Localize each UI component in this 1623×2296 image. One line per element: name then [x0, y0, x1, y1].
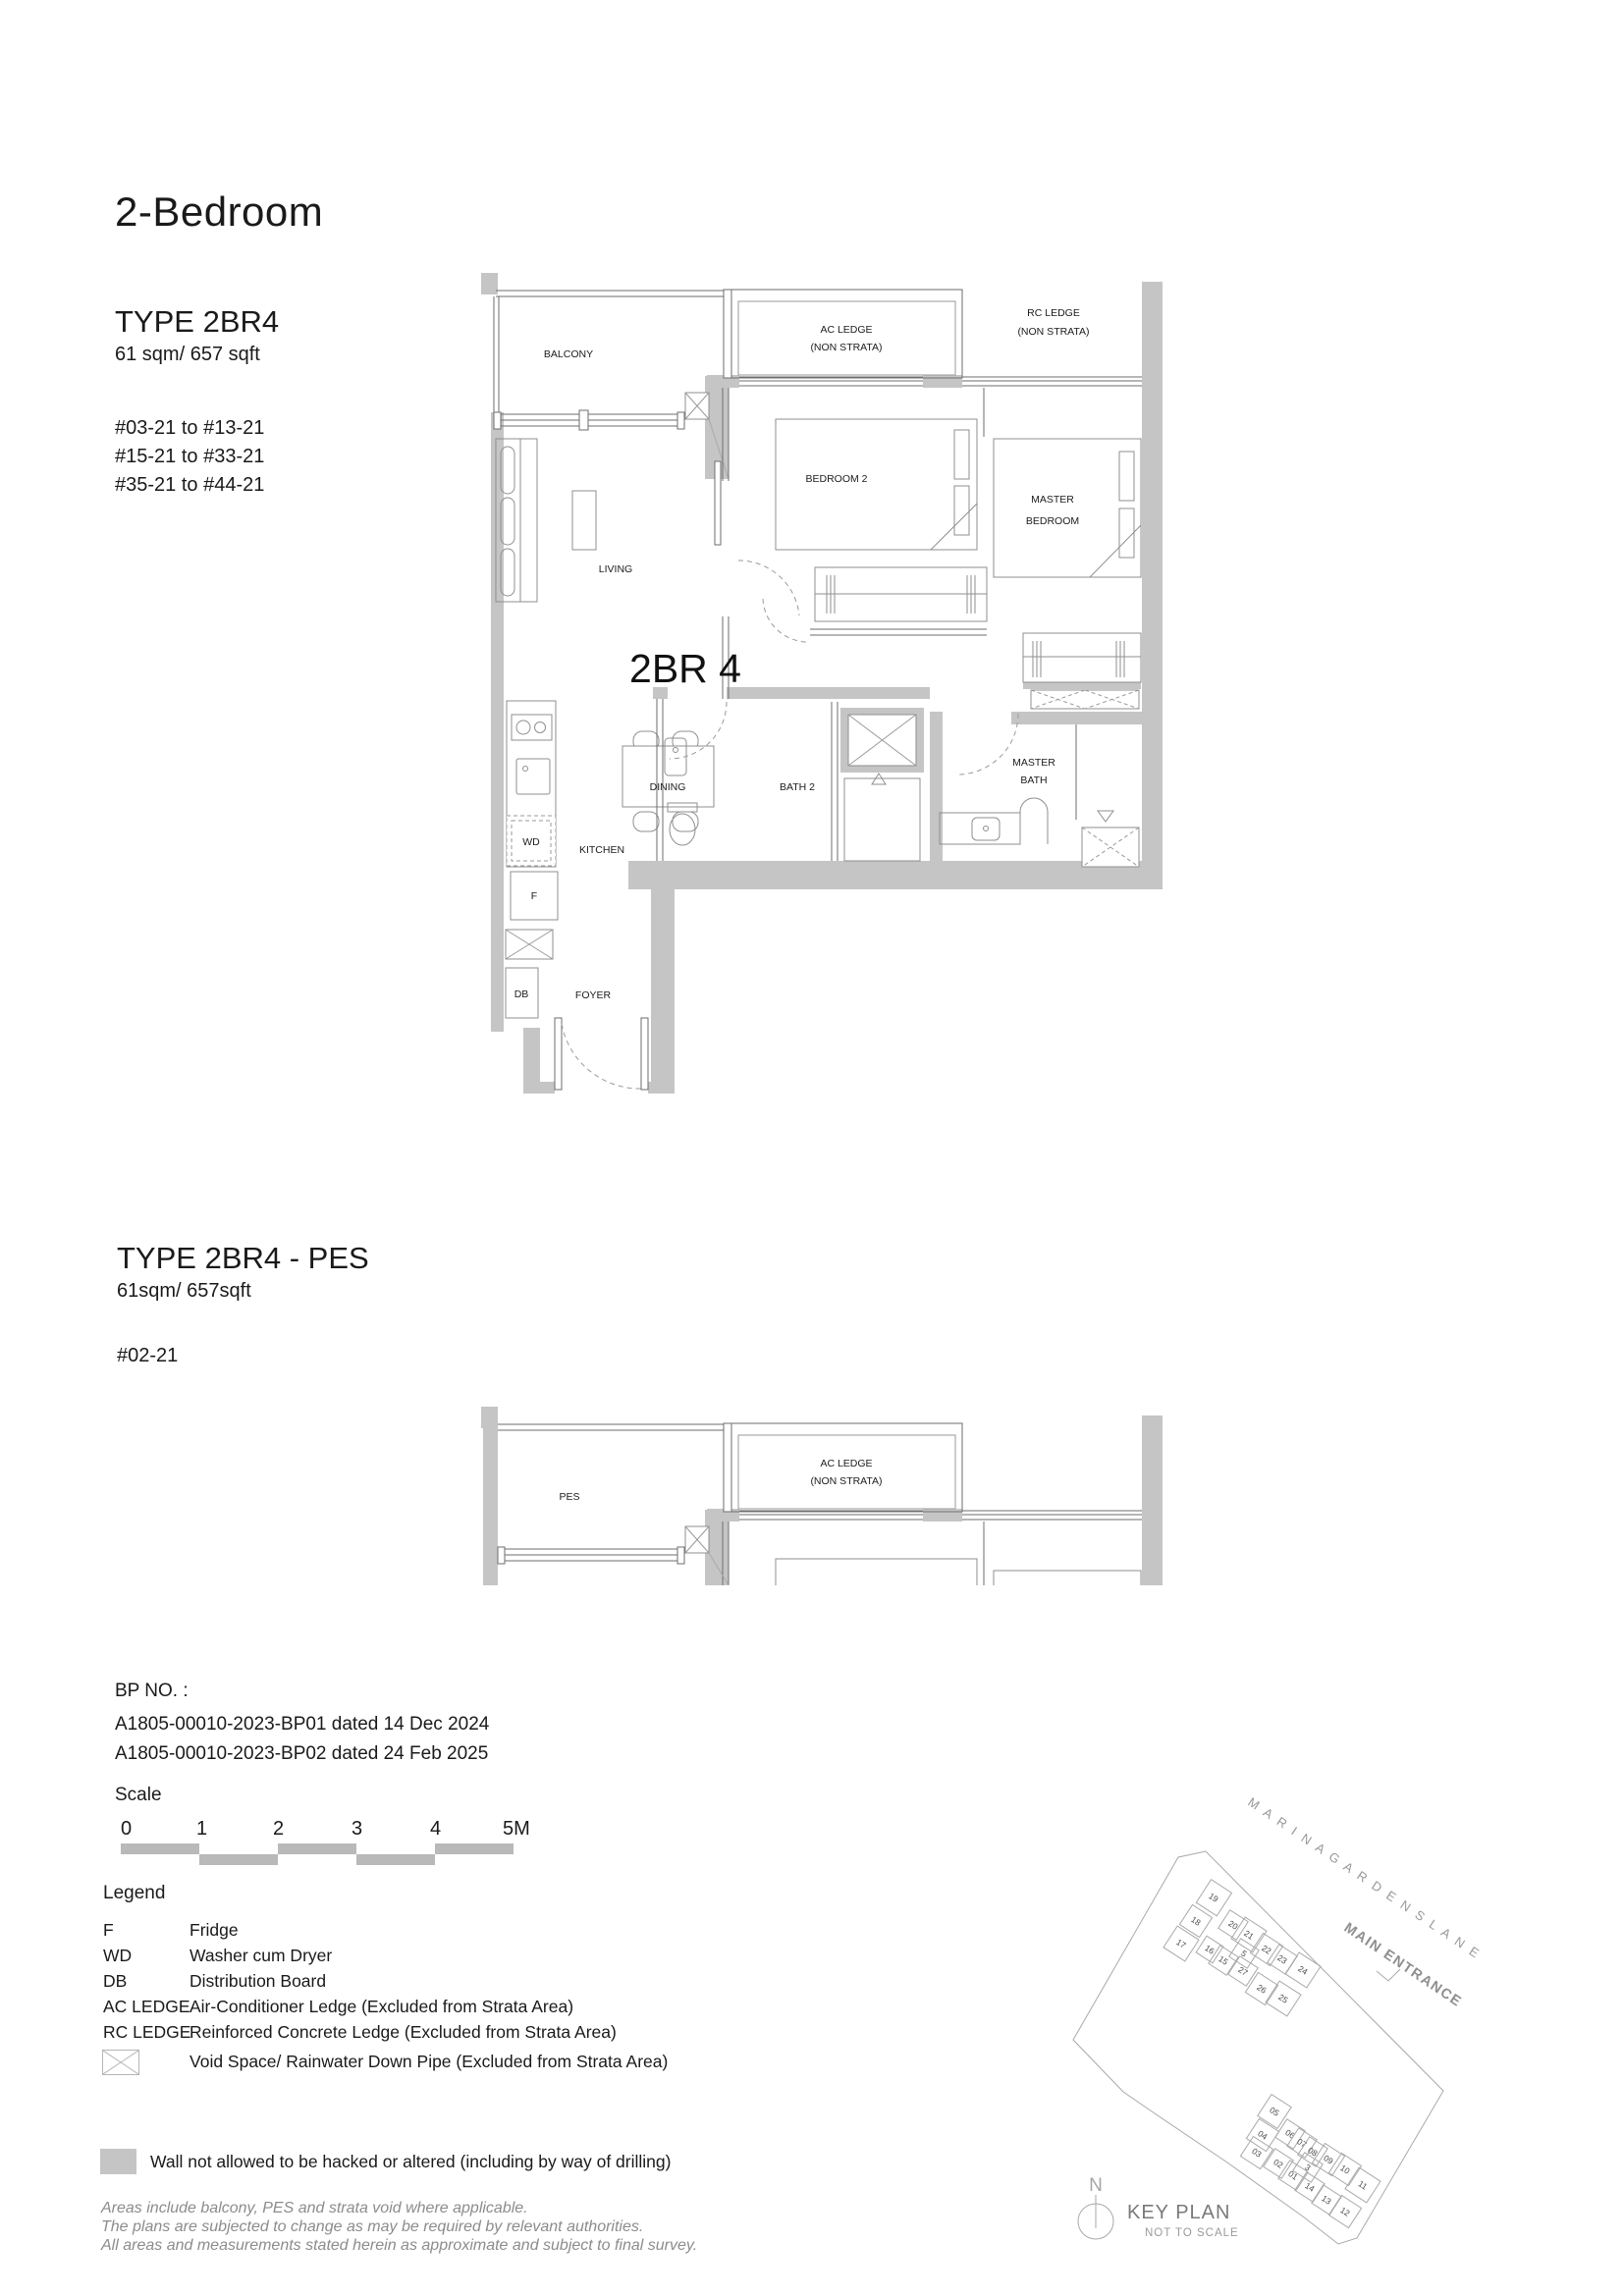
- unit-a-type-title: TYPE 2BR4: [115, 304, 279, 340]
- unit-24: 24: [1296, 1963, 1310, 1977]
- label-living: LIVING: [599, 563, 632, 575]
- unit-25: 25: [1276, 1992, 1290, 2005]
- label-master-bedroom-1: MASTER: [1031, 494, 1074, 506]
- unit-19: 19: [1207, 1891, 1220, 1904]
- bedroom2-door-arc: [738, 561, 799, 615]
- unit-20: 20: [1226, 1918, 1240, 1932]
- master-bed: [994, 439, 1141, 577]
- label-balcony: BALCONY: [544, 348, 593, 360]
- disclaimer-line-3: All areas and measurements stated herein…: [101, 2236, 697, 2255]
- label-master-bath-1: MASTER: [1012, 757, 1055, 769]
- void-box-master-bath: [1082, 828, 1139, 867]
- floorplan-2br4-pes: PES AC LEDGE (NON STRATA): [481, 1404, 1168, 1585]
- void-box-kitchen: [506, 930, 553, 959]
- scale-tick-0: 0: [121, 1818, 132, 1841]
- label-master-bath-2: BATH: [1020, 774, 1047, 786]
- tower1-units: 19 18 17 20 21 16 15 5 22 23 24 27 26 25: [1163, 1880, 1321, 2016]
- key-plan: M A R I N A G A R D E N S L A N E MAIN E…: [1060, 1767, 1623, 2296]
- scale-tick-4: 4: [430, 1818, 441, 1841]
- legend-key-db: DB: [103, 1971, 127, 1992]
- unit-18: 18: [1189, 1914, 1203, 1928]
- cropped-interior-hints: [709, 1522, 1141, 1585]
- label-rc-ledge-sub: (NON STRATA): [1017, 326, 1089, 338]
- unit-27: 27: [1236, 1964, 1250, 1978]
- scale-tick-5: 5M: [503, 1818, 530, 1841]
- unit-12: 12: [1338, 2205, 1352, 2218]
- label-ac-ledge: AC LEDGE: [820, 324, 872, 336]
- keyplan-subtitle: NOT TO SCALE: [1145, 2227, 1239, 2239]
- legend-key-rc: RC LEDGE: [103, 2022, 190, 2043]
- label-ac-ledge-sub: (NON STRATA): [810, 342, 882, 353]
- legend-key-f: F: [103, 1920, 114, 1941]
- site-boundary: [1073, 1851, 1443, 2244]
- wall-note: Wall not allowed to be hacked or altered…: [150, 2152, 671, 2172]
- legend-key-wd: WD: [103, 1946, 132, 1966]
- scale-tick-2: 2: [273, 1818, 284, 1841]
- bp-line-2: A1805-00010-2023-BP02 dated 24 Feb 2025: [115, 1739, 489, 1769]
- unit-a-levels: #03-21 to #13-21 #15-21 to #33-21 #35-21…: [115, 414, 264, 500]
- legend-key-ac: AC LEDGE: [103, 1997, 190, 2017]
- disclaimer-line-1: Areas include balcony, PES and strata vo…: [101, 2199, 697, 2217]
- bedroom2-walls: [715, 388, 987, 699]
- unit-b-area: 61sqm/ 657sqft: [117, 1280, 251, 1303]
- legend-desc-wd: Washer cum Dryer: [189, 1946, 332, 1966]
- label-ac-ledge: AC LEDGE: [820, 1458, 872, 1469]
- unit-b-level: #02-21: [117, 1345, 178, 1367]
- unit-a-area: 61 sqm/ 657 sqft: [115, 344, 260, 366]
- floorplan-brochure-page: 2-Bedroom TYPE 2BR4 61 sqm/ 657 sqft #03…: [0, 0, 1623, 2296]
- master-bath-door-arc: [957, 714, 1018, 774]
- label-wd: WD: [522, 836, 540, 848]
- legend-desc-void: Void Space/ Rainwater Down Pipe (Exclude…: [189, 2052, 668, 2072]
- label-master-bedroom-2: BEDROOM: [1026, 515, 1079, 527]
- scale-tick-3: 3: [352, 1818, 362, 1841]
- void-box-bath-shaft: [840, 708, 924, 861]
- master-wardrobe: [1023, 633, 1141, 682]
- unit-02: 02: [1271, 2157, 1285, 2170]
- unit-26: 26: [1255, 1982, 1269, 1996]
- walls: [481, 273, 1163, 1094]
- label-kitchen: KITCHEN: [579, 844, 624, 856]
- void-box-pes: [685, 1526, 709, 1553]
- unit-b-type-title: TYPE 2BR4 - PES: [117, 1241, 369, 1276]
- void-band-wardrobe: [1031, 690, 1139, 709]
- label-plan-name: 2BR 4: [629, 646, 741, 691]
- bp-lines: A1805-00010-2023-BP01 dated 14 Dec 2024 …: [115, 1710, 489, 1769]
- unit-17: 17: [1174, 1937, 1188, 1950]
- unit-a-level-3: #35-21 to #44-21: [115, 471, 264, 500]
- unit-3: 3: [1303, 2163, 1313, 2173]
- bp-heading: BP NO. :: [115, 1681, 189, 1702]
- entry-door: [555, 1018, 648, 1090]
- wall-swatch-icon: [100, 2149, 136, 2174]
- unit-13: 13: [1320, 2193, 1333, 2207]
- north-compass-icon: N: [1078, 2175, 1113, 2239]
- label-rc-ledge: RC LEDGE: [1027, 307, 1080, 319]
- floorplan-2br4: BALCONY AC LEDGE (NON STRATA) RC LEDGE (…: [481, 270, 1168, 1102]
- unit-10: 10: [1338, 2163, 1352, 2176]
- unit-a-level-1: #03-21 to #13-21: [115, 414, 264, 443]
- unit-11: 11: [1357, 2178, 1370, 2191]
- legend-desc-ac: Air-Conditioner Ledge (Excluded from Str…: [189, 1997, 573, 2017]
- unit-a-level-2: #15-21 to #33-21: [115, 443, 264, 471]
- tower2-units: 05 04 03 06 07 08 09 02 01 3 10 11 14 13…: [1240, 2095, 1380, 2228]
- label-db: DB: [514, 988, 529, 1000]
- unit-15: 15: [1217, 1953, 1230, 1967]
- corridor-door-arc: [763, 599, 808, 642]
- unit-08: 08: [1306, 2145, 1320, 2159]
- label-ac-ledge-sub: (NON STRATA): [810, 1475, 882, 1487]
- label-foyer: FOYER: [575, 989, 612, 1001]
- tv-console: [572, 491, 596, 550]
- north-label: N: [1089, 2175, 1103, 2196]
- scale-heading: Scale: [115, 1785, 162, 1806]
- unit-14: 14: [1303, 2180, 1317, 2194]
- legend-desc-db: Distribution Board: [189, 1971, 326, 1992]
- page-title: 2-Bedroom: [115, 188, 323, 236]
- entrance-chevron-icon: [1377, 1969, 1400, 1981]
- label-dining: DINING: [650, 781, 686, 793]
- label-bedroom2: BEDROOM 2: [805, 473, 867, 485]
- label-fridge: F: [531, 890, 537, 902]
- void-box-balcony: [685, 393, 709, 419]
- unit-05: 05: [1268, 2105, 1281, 2118]
- label-bath2: BATH 2: [780, 781, 815, 793]
- scale-tick-1: 1: [196, 1818, 207, 1841]
- bp-line-1: A1805-00010-2023-BP01 dated 14 Dec 2024: [115, 1710, 489, 1739]
- scale-bar: [121, 1843, 514, 1865]
- legend-heading: Legend: [103, 1883, 165, 1904]
- void-symbol-icon: [102, 2050, 139, 2075]
- unit-22: 22: [1260, 1943, 1273, 1956]
- disclaimer-line-2: The plans are subjected to change as may…: [101, 2217, 697, 2236]
- bedroom2-wardrobe: [815, 567, 987, 621]
- unit-21-highlighted: 21: [1242, 1928, 1256, 1942]
- legend-desc-f: Fridge: [189, 1920, 239, 1941]
- label-pes: PES: [559, 1491, 579, 1503]
- legend-desc-rc: Reinforced Concrete Ledge (Excluded from…: [189, 2022, 617, 2043]
- keyplan-title: KEY PLAN: [1127, 2202, 1230, 2223]
- disclaimer: Areas include balcony, PES and strata vo…: [101, 2199, 697, 2255]
